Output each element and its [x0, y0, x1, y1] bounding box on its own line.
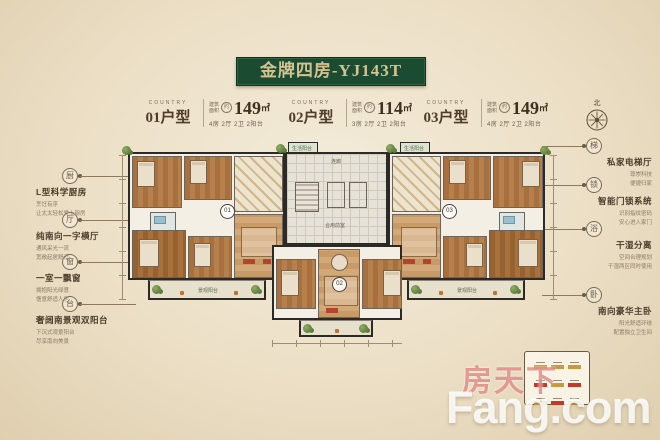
area-value: 149 — [234, 99, 261, 117]
master-bedroom — [132, 230, 186, 278]
feature-desc: 空间合理规划 — [548, 253, 652, 261]
divider — [203, 99, 204, 127]
room-label: 景观阳台 — [198, 287, 218, 294]
feature-title: 私家电梯厅 — [548, 156, 652, 168]
feature-desc: 识别指纹密码 — [548, 209, 652, 217]
legend-swatch — [568, 365, 581, 369]
living-hall-icon: 厅 — [62, 212, 78, 228]
unit-spec: 4房 2厅 2卫 2阳台 — [487, 119, 556, 128]
unit-card-right: 建筑面积 约 149 ㎡ 4房 2厅 2卫 2阳台 — [209, 99, 278, 128]
area-prefix: 建筑面积 — [209, 102, 219, 114]
unit-card-right: 建筑面积 约 114 ㎡ 3房 2厅 2卫 2阳台 — [352, 99, 421, 128]
feature-double-balcony: 台 奢阔南景观双阳台 下沉式观景阳台 尽享南向美景 — [36, 296, 140, 345]
dimension-line-right — [550, 155, 557, 300]
approx-circle-icon: 约 — [221, 102, 232, 113]
dimension-line-bottom — [272, 340, 402, 347]
area-prefix: 建筑面积 — [352, 102, 362, 114]
callout-line — [542, 295, 584, 296]
bedroom — [443, 236, 487, 278]
unit-name: 03户型 — [416, 106, 476, 127]
feature-desc: 干湿两区同时使用 — [548, 262, 652, 270]
bathroom-icon: 浴 — [586, 221, 602, 237]
area-unit: ㎡ — [261, 101, 270, 114]
feature-dry-wet: 浴 干湿分离 空间合理规划 干湿两区同时使用 — [548, 221, 652, 270]
bedroom — [132, 156, 182, 208]
elevator — [327, 182, 345, 208]
area-prefix: 建筑面积 — [487, 102, 497, 114]
unit-02-tag: 02 — [332, 277, 347, 292]
unit-name: 02户型 — [281, 106, 341, 127]
unit-01-tag: 01 — [220, 204, 235, 219]
feature-master-bedroom: 卧 南向豪华主卧 阳光舒适环绕 配置独立卫生间 — [548, 287, 652, 336]
area-value: 149 — [512, 99, 539, 117]
approx-circle-icon: 约 — [364, 102, 375, 113]
unit-name: 01户型 — [138, 106, 198, 127]
feature-desc: 下沉式观景阳台 — [36, 328, 140, 336]
feature-desc: 尽享南向美景 — [36, 337, 140, 345]
area-unit: ㎡ — [403, 101, 412, 114]
bedroom — [276, 259, 316, 309]
callout-line — [542, 229, 584, 230]
compass-icon — [585, 108, 609, 137]
callout-line — [80, 304, 136, 305]
unit-card-left: COUNTRY 01户型 — [138, 100, 198, 127]
area-value: 114 — [377, 99, 403, 117]
approx-circle-icon: 约 — [499, 102, 510, 113]
room-label: 生活阳台 — [292, 145, 312, 152]
view-balcony-02 — [299, 320, 373, 337]
feature-title: 干湿分离 — [548, 239, 652, 251]
unit-03-tag: 03 — [442, 204, 457, 219]
bedroom — [184, 156, 232, 200]
unit-card-01: COUNTRY 01户型 建筑面积 约 149 ㎡ 4房 2厅 2卫 2阳台 — [138, 92, 278, 134]
compass-north-label: 北 — [578, 98, 616, 108]
stairs — [295, 182, 319, 212]
divider — [346, 99, 347, 127]
callout-line — [542, 185, 584, 186]
unit-01-block: 01 — [128, 152, 285, 280]
master-bedroom — [489, 230, 543, 278]
room-label: 合用前室 — [325, 222, 345, 229]
kitchen-icon: 厨 — [62, 168, 78, 184]
feature-title: 南向豪华主卧 — [548, 305, 652, 317]
bedroom — [188, 236, 232, 278]
feature-smart-lock: 锁 智能门锁系统 识别指纹密码 安心进入家门 — [548, 177, 652, 226]
room-label: 景观阳台 — [457, 287, 477, 294]
unit-card-03: COUNTRY 03户型 建筑面积 约 149 ㎡ 4房 2厅 2卫 2阳台 — [416, 92, 556, 134]
unit-03-block: 03 — [388, 152, 545, 280]
plant-icon — [276, 144, 285, 153]
page-title: 金牌四房-YJ143T — [260, 61, 402, 80]
room-label: 连廊 — [331, 158, 341, 165]
unit-card-right: 建筑面积 约 149 ㎡ 4房 2厅 2卫 2阳台 — [487, 99, 556, 128]
watermark-logo: Fang.com — [446, 382, 651, 434]
plant-icon — [540, 146, 549, 155]
feature-desc: 阳光舒适环绕 — [548, 319, 652, 327]
smart-lock-icon: 锁 — [586, 177, 602, 193]
dimension-line-left — [119, 155, 126, 300]
area-unit: ㎡ — [539, 101, 548, 114]
unit-card-left: COUNTRY 03户型 — [416, 100, 476, 127]
core-lobby: 连廊 合用前室 — [285, 152, 388, 245]
callout-line — [542, 146, 584, 147]
bedroom — [362, 259, 402, 309]
bedroom-icon: 卧 — [586, 287, 602, 303]
feature-title: 智能门锁系统 — [548, 195, 652, 207]
room-label: 生活阳台 — [404, 145, 424, 152]
plant-icon — [122, 146, 131, 155]
unit-spec: 4房 2厅 2卫 2阳台 — [209, 119, 278, 128]
divider — [481, 99, 482, 127]
kitchen — [234, 156, 283, 212]
unit-02-block: 02 — [272, 245, 402, 320]
bedroom — [493, 156, 543, 208]
bay-window-icon: 窗 — [62, 254, 78, 270]
feature-title: 奢阔南景观双阳台 — [36, 314, 140, 326]
floorplan-poster: 金牌四房-YJ143T COUNTRY 01户型 建筑面积 约 149 ㎡ 4房… — [0, 0, 660, 440]
plant-icon — [386, 144, 395, 153]
unit-card-02: COUNTRY 02户型 建筑面积 约 114 ㎡ 3房 2厅 2卫 2阳台 — [281, 92, 421, 134]
kitchen — [392, 156, 441, 212]
elevator-icon: 梯 — [586, 138, 602, 154]
bedroom — [443, 156, 491, 200]
feature-desc: 配置独立卫生间 — [548, 328, 652, 336]
title-banner: 金牌四房-YJ143T — [236, 57, 426, 86]
elevator — [349, 182, 367, 208]
view-balcony-01: 景观阳台 — [148, 280, 266, 300]
unit-card-left: COUNTRY 02户型 — [281, 100, 341, 127]
view-balcony-03: 景观阳台 — [407, 280, 525, 300]
balcony-icon: 台 — [62, 296, 78, 312]
unit-spec: 3房 2厅 2卫 2阳台 — [352, 119, 421, 128]
